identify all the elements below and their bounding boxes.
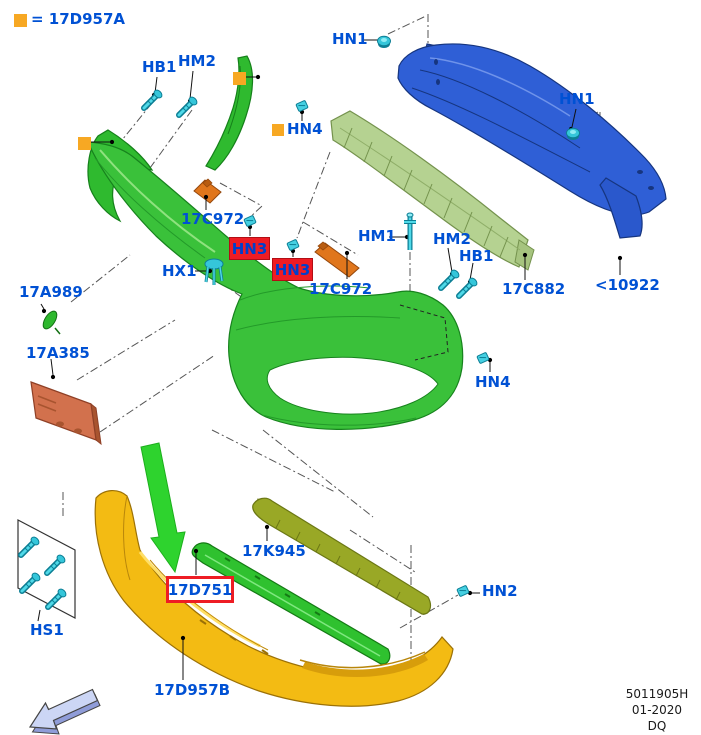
marker-square-upper-bracket [233,72,246,85]
exploded-parts-diagram [0,0,701,735]
clip-icon-hn3-1[interactable] [244,215,256,226]
callout-hn1-left[interactable]: HN1 [332,31,368,47]
callout-17k945[interactable]: 17K945 [242,543,306,559]
footer-doc-number: 5011905H [608,686,701,702]
hardware-kit-box [18,520,75,618]
screw-icon-hs1-1[interactable] [21,536,40,555]
callout-hn3-box2[interactable]: HN3 [272,258,313,281]
bumper-retainer-bracket-left-part[interactable] [194,179,221,203]
callout-17a989[interactable]: 17A989 [19,284,83,300]
callout-17c972-right[interactable]: 17C972 [309,281,372,297]
screw-icon-hs1-2[interactable] [47,554,66,573]
callout-hx1[interactable]: HX1 [162,263,197,279]
highlight-arrow [141,443,185,572]
marker-square-corner-bracket [78,137,91,150]
clip-icon-hn4-bottom[interactable] [477,352,489,363]
callout-hb1-mid[interactable]: HB1 [459,248,493,264]
callout-10922[interactable]: <10922 [595,277,660,293]
callout-17c882[interactable]: 17C882 [502,281,565,297]
callout-hn1-right[interactable]: HN1 [559,91,595,107]
legend-text[interactable]: = 17D957A [31,11,125,27]
callout-hn2[interactable]: HN2 [482,583,518,599]
callout-17a385[interactable]: 17A385 [26,345,90,361]
callout-hs1[interactable]: HS1 [30,622,64,638]
nut-icon-hn1-left[interactable] [378,36,391,48]
parts-diagram-page: = 17D957A HB1 HM2 HN1 HN1 HN4 17C972 HN3… [0,0,701,735]
bumper-retainer-bracket-right-part[interactable] [315,242,359,277]
callout-hm2-mid[interactable]: HM2 [433,231,471,247]
clip-icon-hn4-top[interactable] [296,100,308,111]
license-plate-bracket-part[interactable] [31,382,101,444]
bolt-icon-hm1[interactable] [404,213,416,250]
callout-17d957b[interactable]: 17D957B [154,682,230,698]
footer-code: DQ [608,718,701,734]
screw-icon-hm2-mid[interactable] [441,269,460,288]
screw-icon-hb1-mid[interactable] [459,277,478,296]
legend-marker-square [14,14,27,27]
screw-icon-hm2-top[interactable] [179,96,198,115]
callout-hb1-top[interactable]: HB1 [142,59,176,75]
callout-hm1[interactable]: HM1 [358,228,396,244]
screw-icon-hb1-top[interactable] [144,89,163,108]
clip-icon-hn2[interactable] [457,585,469,596]
screw-icon-hs1-4[interactable] [48,588,67,607]
clip-icon-hn3-2[interactable] [287,239,299,250]
callout-hn3-box1[interactable]: HN3 [229,237,270,260]
nut-icon-hn1-right[interactable] [567,128,580,140]
screw-icon-hs1-3[interactable] [22,572,41,591]
front-direction-arrow-icon [30,690,100,735]
callout-hn4-bottom[interactable]: HN4 [475,374,511,390]
footer-revision-date: 01-2020 [608,702,701,718]
callout-17c972-left[interactable]: 17C972 [181,211,244,227]
callout-hn4-top[interactable]: HN4 [287,121,323,137]
marker-square-hn4 [272,124,284,136]
footer-block: 5011905H 01-2020 DQ [608,686,701,734]
callout-hm2-top[interactable]: HM2 [178,53,216,69]
callout-17d751-box[interactable]: 17D751 [166,576,234,603]
